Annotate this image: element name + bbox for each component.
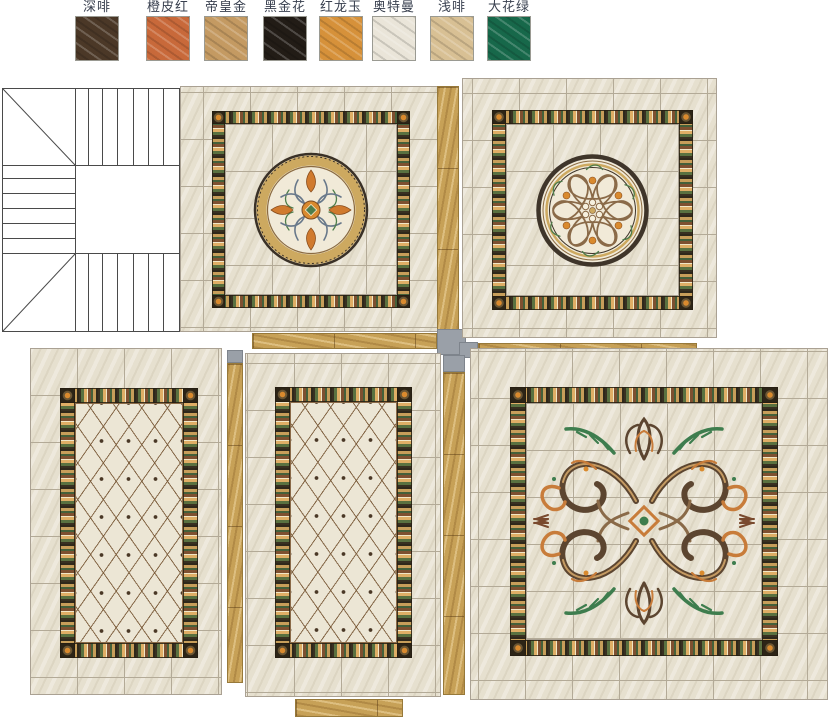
legend-label: 奥特曼 bbox=[372, 0, 416, 15]
border-edge bbox=[762, 387, 778, 656]
material-swatch-big-flower-green bbox=[487, 16, 531, 61]
legend-item-light-coffee: 浅啡 bbox=[430, 0, 474, 61]
floor-tile-layout-drawing: 深啡 橙皮红 帝皇金 黑金花 红龙玉 奥特曼 浅啡 大花绿 bbox=[0, 0, 828, 717]
legend-item-emperor-gold: 帝皇金 bbox=[204, 0, 248, 61]
border-edge bbox=[510, 387, 778, 403]
wall-block bbox=[443, 355, 465, 372]
border-corner-rosette bbox=[397, 643, 412, 658]
gold-threshold-strip-vertical bbox=[437, 86, 459, 332]
bottom-left-floral-border bbox=[60, 388, 198, 658]
border-corner-rosette bbox=[275, 387, 290, 402]
circular-rosette-medallion-top-right bbox=[535, 153, 650, 268]
border-edge bbox=[492, 296, 693, 310]
legend-label: 大花绿 bbox=[487, 0, 531, 15]
gold-threshold-strip-horizontal bbox=[295, 699, 403, 717]
border-corner-rosette bbox=[492, 110, 506, 124]
border-edge bbox=[60, 643, 198, 658]
border-corner-rosette bbox=[762, 387, 778, 403]
legend-item-black-gold-flower: 黑金花 bbox=[263, 0, 307, 61]
material-swatch-orange-red bbox=[146, 16, 190, 61]
border-corner-rosette bbox=[510, 640, 526, 656]
border-corner-rosette bbox=[397, 387, 412, 402]
border-edge bbox=[212, 111, 225, 308]
legend-item-red-dragon-jade: 红龙玉 bbox=[319, 0, 363, 61]
legend-item-aoteman-beige: 奥特曼 bbox=[372, 0, 416, 61]
border-corner-rosette bbox=[397, 111, 410, 124]
border-edge bbox=[492, 110, 506, 310]
scroll-medallion-bottom-right bbox=[528, 405, 760, 637]
diamond-lattice-field bbox=[75, 403, 183, 643]
bottom-center-floral-border bbox=[275, 387, 412, 658]
border-corner-rosette bbox=[510, 387, 526, 403]
border-edge bbox=[679, 110, 693, 310]
border-edge bbox=[275, 387, 290, 658]
border-corner-rosette bbox=[397, 295, 410, 308]
border-corner-rosette bbox=[679, 296, 693, 310]
border-corner-rosette bbox=[183, 388, 198, 403]
gold-threshold-strip-horizontal bbox=[252, 333, 437, 349]
border-corner-rosette bbox=[60, 643, 75, 658]
material-swatch-red-dragon-jade bbox=[319, 16, 363, 61]
border-corner-rosette bbox=[183, 643, 198, 658]
staircase-plan bbox=[2, 88, 180, 332]
legend-label: 红龙玉 bbox=[319, 0, 363, 15]
material-swatch-black-gold-flower bbox=[263, 16, 307, 61]
border-edge bbox=[397, 387, 412, 658]
border-edge bbox=[275, 643, 412, 658]
border-edge bbox=[492, 110, 693, 124]
circular-medallion-top-center bbox=[253, 152, 369, 268]
border-edge bbox=[275, 387, 412, 402]
border-corner-rosette bbox=[679, 110, 693, 124]
border-corner-rosette bbox=[212, 111, 225, 124]
border-edge bbox=[397, 111, 410, 308]
border-corner-rosette bbox=[275, 643, 290, 658]
material-swatch-aoteman-beige bbox=[372, 16, 416, 61]
legend-label: 橙皮红 bbox=[146, 0, 190, 15]
border-edge bbox=[60, 388, 75, 658]
border-corner-rosette bbox=[60, 388, 75, 403]
border-edge bbox=[183, 388, 198, 658]
legend-label: 黑金花 bbox=[263, 0, 307, 15]
material-swatch-dark-coffee bbox=[75, 16, 119, 61]
border-corner-rosette bbox=[762, 640, 778, 656]
material-swatch-emperor-gold bbox=[204, 16, 248, 61]
legend-label: 深啡 bbox=[75, 0, 119, 15]
legend-item-orange-red: 橙皮红 bbox=[146, 0, 190, 61]
border-corner-rosette bbox=[212, 295, 225, 308]
border-edge bbox=[212, 111, 410, 124]
border-edge bbox=[510, 640, 778, 656]
legend-item-dark-coffee: 深啡 bbox=[75, 0, 119, 61]
border-edge bbox=[212, 295, 410, 308]
wall-block bbox=[227, 350, 243, 363]
border-corner-rosette bbox=[492, 296, 506, 310]
legend-label: 浅啡 bbox=[430, 0, 474, 15]
diamond-lattice-field bbox=[290, 402, 397, 643]
legend-label: 帝皇金 bbox=[204, 0, 248, 15]
border-edge bbox=[60, 388, 198, 403]
legend-item-big-flower-green: 大花绿 bbox=[487, 0, 531, 61]
border-edge bbox=[510, 387, 526, 656]
material-swatch-light-coffee bbox=[430, 16, 474, 61]
gold-threshold-strip-vertical bbox=[443, 372, 465, 695]
gold-threshold-strip-vertical bbox=[227, 363, 243, 683]
